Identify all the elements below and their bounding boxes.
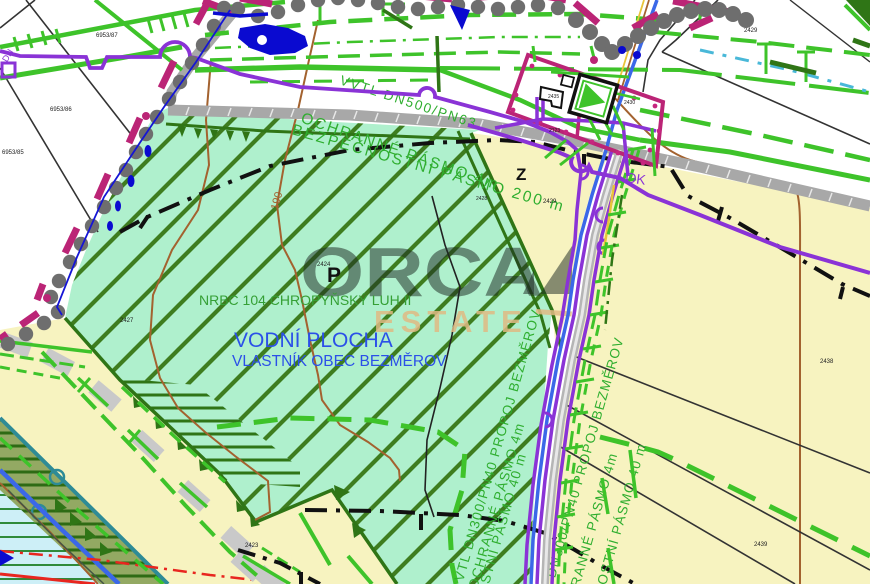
svg-text:6953/85: 6953/85 (2, 150, 24, 156)
svg-text:2423: 2423 (245, 543, 259, 549)
svg-text:2428: 2428 (476, 196, 487, 202)
svg-text:2439: 2439 (754, 542, 768, 548)
svg-text:2429: 2429 (543, 199, 557, 205)
svg-text:ESTATE: ESTATE (374, 304, 528, 339)
svg-text:6953/87: 6953/87 (96, 33, 118, 39)
svg-text:Z: Z (516, 165, 526, 184)
svg-text:NRBC 104 CHROPYŇSKÝ LUH II: NRBC 104 CHROPYŇSKÝ LUH II (199, 292, 411, 308)
svg-text:6953/86: 6953/86 (50, 107, 72, 113)
svg-text:2430: 2430 (624, 100, 635, 106)
svg-text:VLASTNÍK OBEC BEZMĚROV: VLASTNÍK OBEC BEZMĚROV (232, 353, 447, 370)
svg-text:2123: 2123 (549, 128, 560, 134)
svg-text:2435: 2435 (548, 94, 559, 100)
svg-text:2429: 2429 (744, 28, 758, 34)
svg-text:2427: 2427 (120, 318, 134, 324)
svg-text:VODNÍ PLOCHA: VODNÍ PLOCHA (234, 329, 393, 352)
svg-text:2438: 2438 (820, 359, 834, 365)
